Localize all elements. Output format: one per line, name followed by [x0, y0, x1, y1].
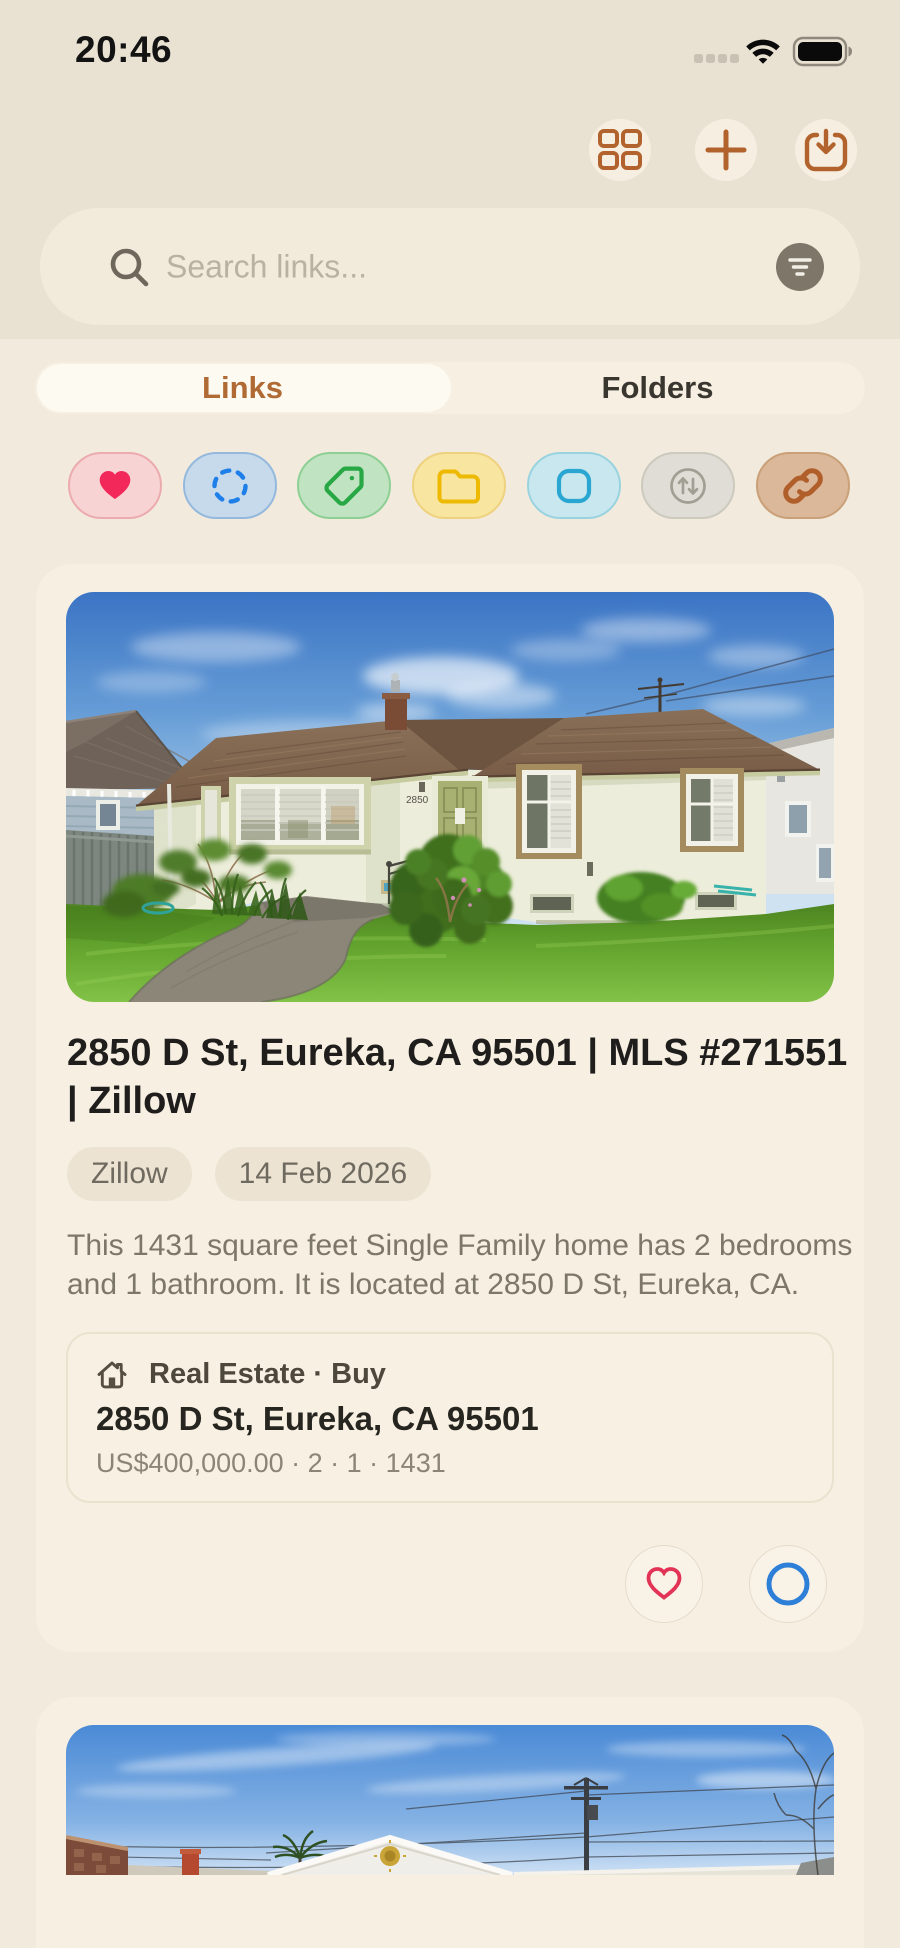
svg-text:2850: 2850 — [406, 795, 429, 806]
